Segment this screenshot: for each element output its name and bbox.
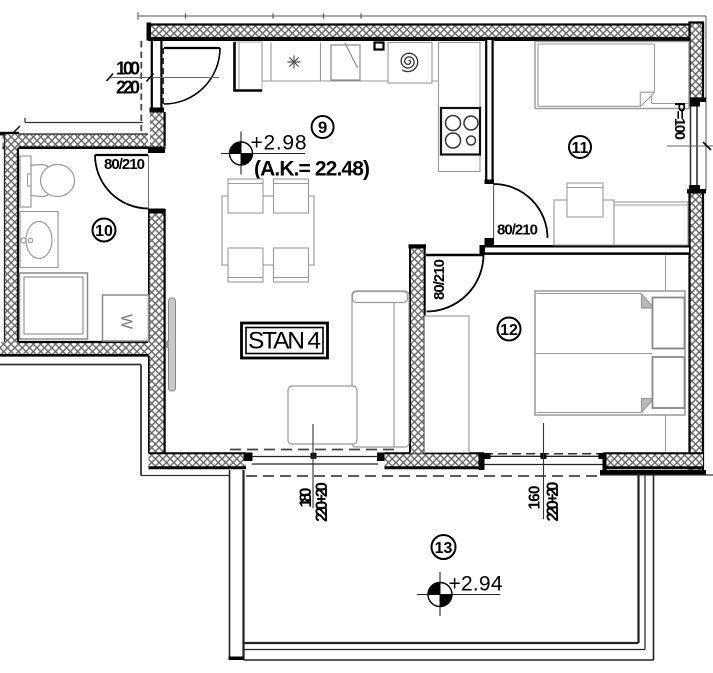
svg-text:12: 12: [500, 322, 518, 339]
svg-text:80/210: 80/210: [497, 222, 538, 239]
svg-text:220+20: 220+20: [544, 482, 562, 522]
svg-text:80/210: 80/210: [431, 259, 448, 300]
svg-text:W: W: [118, 314, 135, 330]
svg-text:11: 11: [572, 140, 589, 157]
svg-text:13: 13: [435, 540, 453, 557]
svg-text:STAN 4: STAN 4: [248, 328, 321, 355]
svg-text:80/210: 80/210: [104, 156, 145, 173]
svg-text:100: 100: [116, 59, 140, 79]
svg-text:(A.K.= 22.48): (A.K.= 22.48): [254, 158, 370, 181]
svg-text:+2.94: +2.94: [449, 573, 503, 596]
svg-text:220+20: 220+20: [313, 482, 331, 522]
svg-text:10: 10: [95, 223, 113, 240]
svg-text:9: 9: [318, 118, 327, 137]
svg-text:160: 160: [527, 486, 544, 510]
svg-text:+2.98: +2.98: [251, 132, 307, 155]
svg-text:220: 220: [116, 78, 140, 98]
svg-text:P=100: P=100: [671, 102, 688, 140]
